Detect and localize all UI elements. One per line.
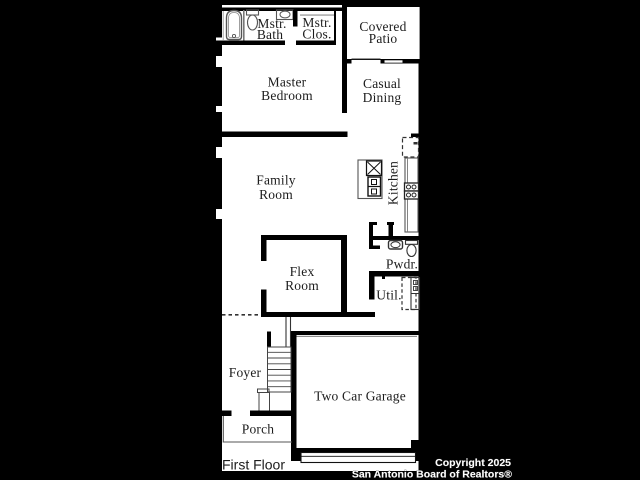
svg-text:Room: Room	[259, 187, 293, 202]
svg-text:Pwdr.: Pwdr.	[386, 257, 418, 272]
svg-text:Bedroom: Bedroom	[261, 88, 313, 103]
svg-text:Clos.: Clos.	[302, 27, 331, 42]
svg-text:Family: Family	[256, 173, 296, 188]
svg-text:Util.: Util.	[376, 288, 401, 303]
svg-text:Two Car Garage: Two Car Garage	[314, 389, 406, 404]
svg-text:Flex: Flex	[290, 264, 315, 279]
svg-text:Foyer: Foyer	[229, 365, 262, 380]
svg-text:Porch: Porch	[242, 422, 275, 437]
svg-text:Kitchen: Kitchen	[386, 161, 401, 205]
svg-text:Bath: Bath	[257, 27, 283, 42]
svg-text:Copyright 2025: Copyright 2025	[435, 457, 511, 469]
svg-text:Patio: Patio	[369, 31, 398, 46]
svg-text:Room: Room	[285, 278, 319, 293]
svg-text:San Antonio Board of Realtors®: San Antonio Board of Realtors®	[352, 469, 512, 480]
svg-text:First Floor: First Floor	[222, 457, 285, 473]
svg-text:Dining: Dining	[363, 90, 402, 105]
svg-text:Casual: Casual	[363, 76, 401, 91]
